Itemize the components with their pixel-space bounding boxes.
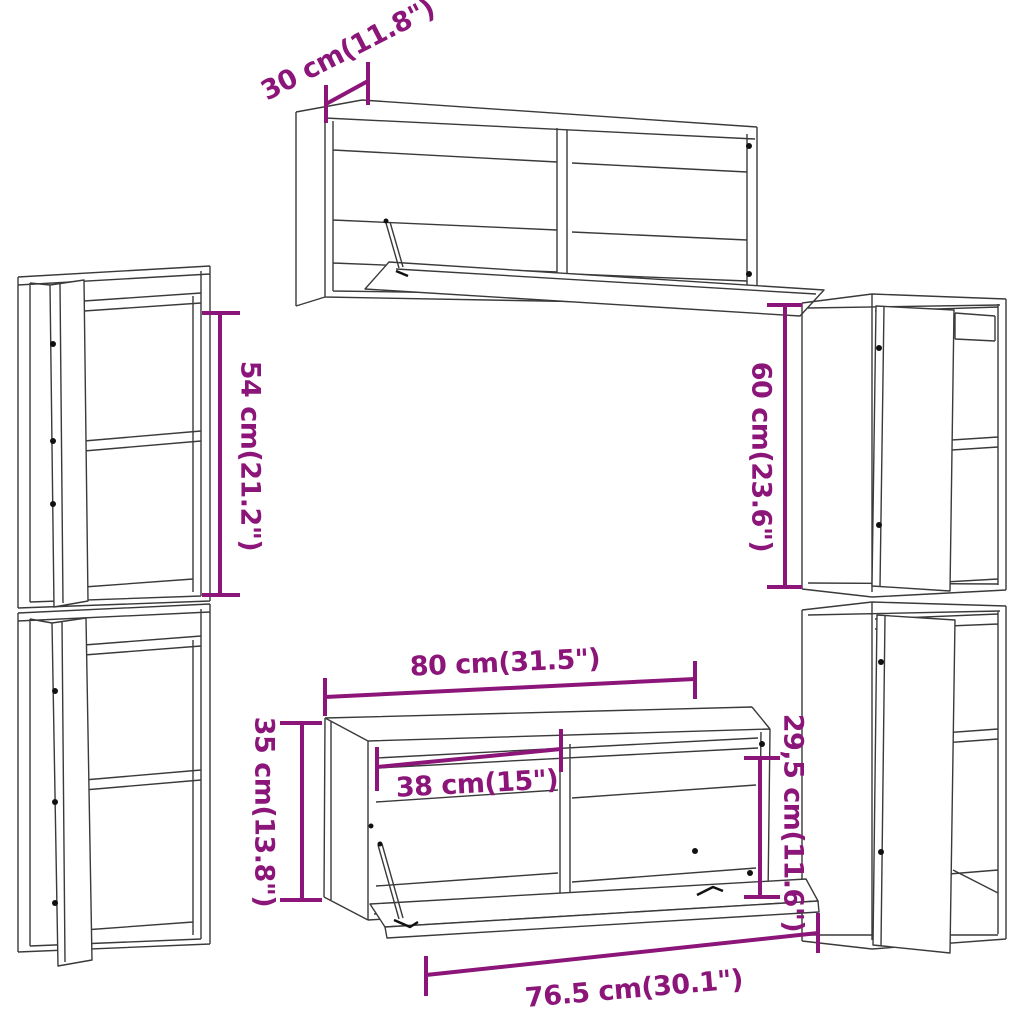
wall-cabinet-cam-dots: [384, 143, 753, 277]
dimension-diagram: 30 cm(11.8") 54 cm(21.2") 60 cm(23.6") 8…: [0, 0, 1024, 1024]
tall-cabinet-lower-left: [18, 604, 210, 966]
tall-cabinet-upper-left: [18, 266, 210, 608]
cabinet-carcass: [18, 604, 210, 952]
cabinet-open-door: [872, 306, 954, 591]
bench-height-label: 35 cm(13.8"): [251, 717, 278, 907]
bench-inner-width-label: 38 cm(15"): [395, 766, 559, 801]
bench-width-label: 80 cm(31.5"): [409, 645, 600, 680]
tv-bench: [324, 707, 819, 938]
cabinet-open-door: [873, 615, 955, 953]
wall-cabinet-stay-rod: [386, 222, 403, 268]
wall-cabinet-open-flap: [365, 262, 824, 316]
furniture-line-art: [0, 0, 1024, 1024]
bench-height-dimension-line: [280, 723, 322, 900]
bench-flap-height-dimension-line: [744, 758, 780, 897]
wall-cabinet-top: [296, 100, 824, 316]
tall-cabinet-upper-right: [802, 294, 1006, 597]
cabinet-open-door: [52, 618, 92, 966]
cabinet-carcass: [18, 266, 210, 608]
cabinet-open-door: [50, 280, 88, 607]
right-cabinet-height-label: 60 cm(23.6"): [748, 362, 775, 552]
tall-cabinet-lower-right: [802, 602, 1006, 953]
dimension-lines: [202, 62, 818, 996]
bench-flap-height-label: 29,5 cm(11.6"): [780, 714, 807, 933]
left-cabinet-height-label: 54 cm(21.2"): [237, 361, 264, 551]
